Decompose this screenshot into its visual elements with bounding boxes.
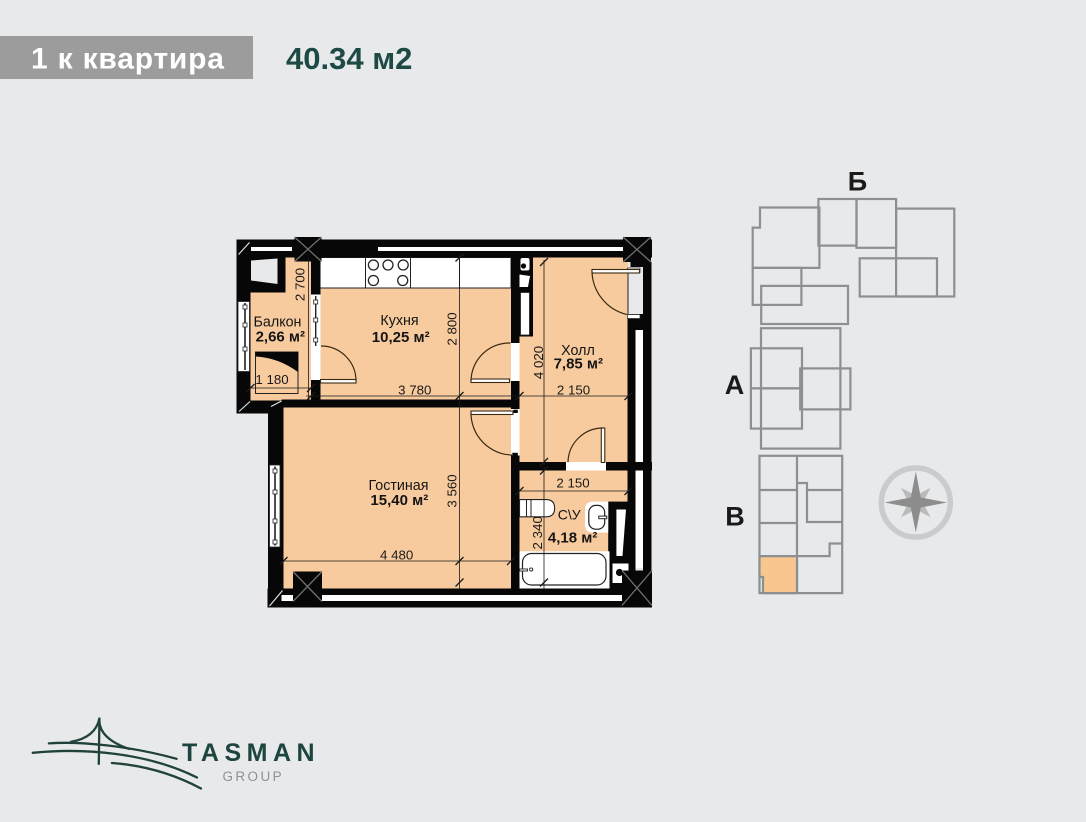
svg-text:2,66 м²: 2,66 м²: [256, 329, 305, 346]
svg-text:А: А: [725, 370, 745, 400]
svg-text:В: В: [725, 502, 745, 532]
svg-text:2 340: 2 340: [530, 516, 545, 549]
svg-text:7,85 м²: 7,85 м²: [554, 356, 603, 373]
svg-text:2 700: 2 700: [293, 268, 308, 301]
svg-text:4 020: 4 020: [531, 346, 546, 379]
svg-text:Кухня: Кухня: [380, 313, 418, 329]
svg-text:1 180: 1 180: [255, 372, 288, 387]
svg-text:Б: Б: [848, 167, 867, 197]
svg-text:4 480: 4 480: [380, 547, 413, 562]
svg-text:15,40 м²: 15,40 м²: [370, 492, 428, 509]
svg-text:40.34 м2: 40.34 м2: [286, 41, 412, 76]
svg-text:10,25 м²: 10,25 м²: [372, 329, 430, 346]
svg-text:GROUP: GROUP: [223, 769, 285, 784]
svg-text:4,18 м²: 4,18 м²: [548, 530, 597, 547]
svg-text:1 к квартира: 1 к квартира: [31, 43, 225, 76]
svg-text:2 150: 2 150: [556, 476, 589, 491]
svg-text:TASMAN: TASMAN: [182, 739, 320, 767]
svg-text:3 780: 3 780: [398, 383, 431, 398]
svg-text:2 150: 2 150: [557, 383, 590, 398]
svg-text:2 800: 2 800: [445, 312, 460, 345]
svg-text:3 560: 3 560: [445, 474, 460, 507]
svg-text:С\У: С\У: [558, 507, 581, 523]
